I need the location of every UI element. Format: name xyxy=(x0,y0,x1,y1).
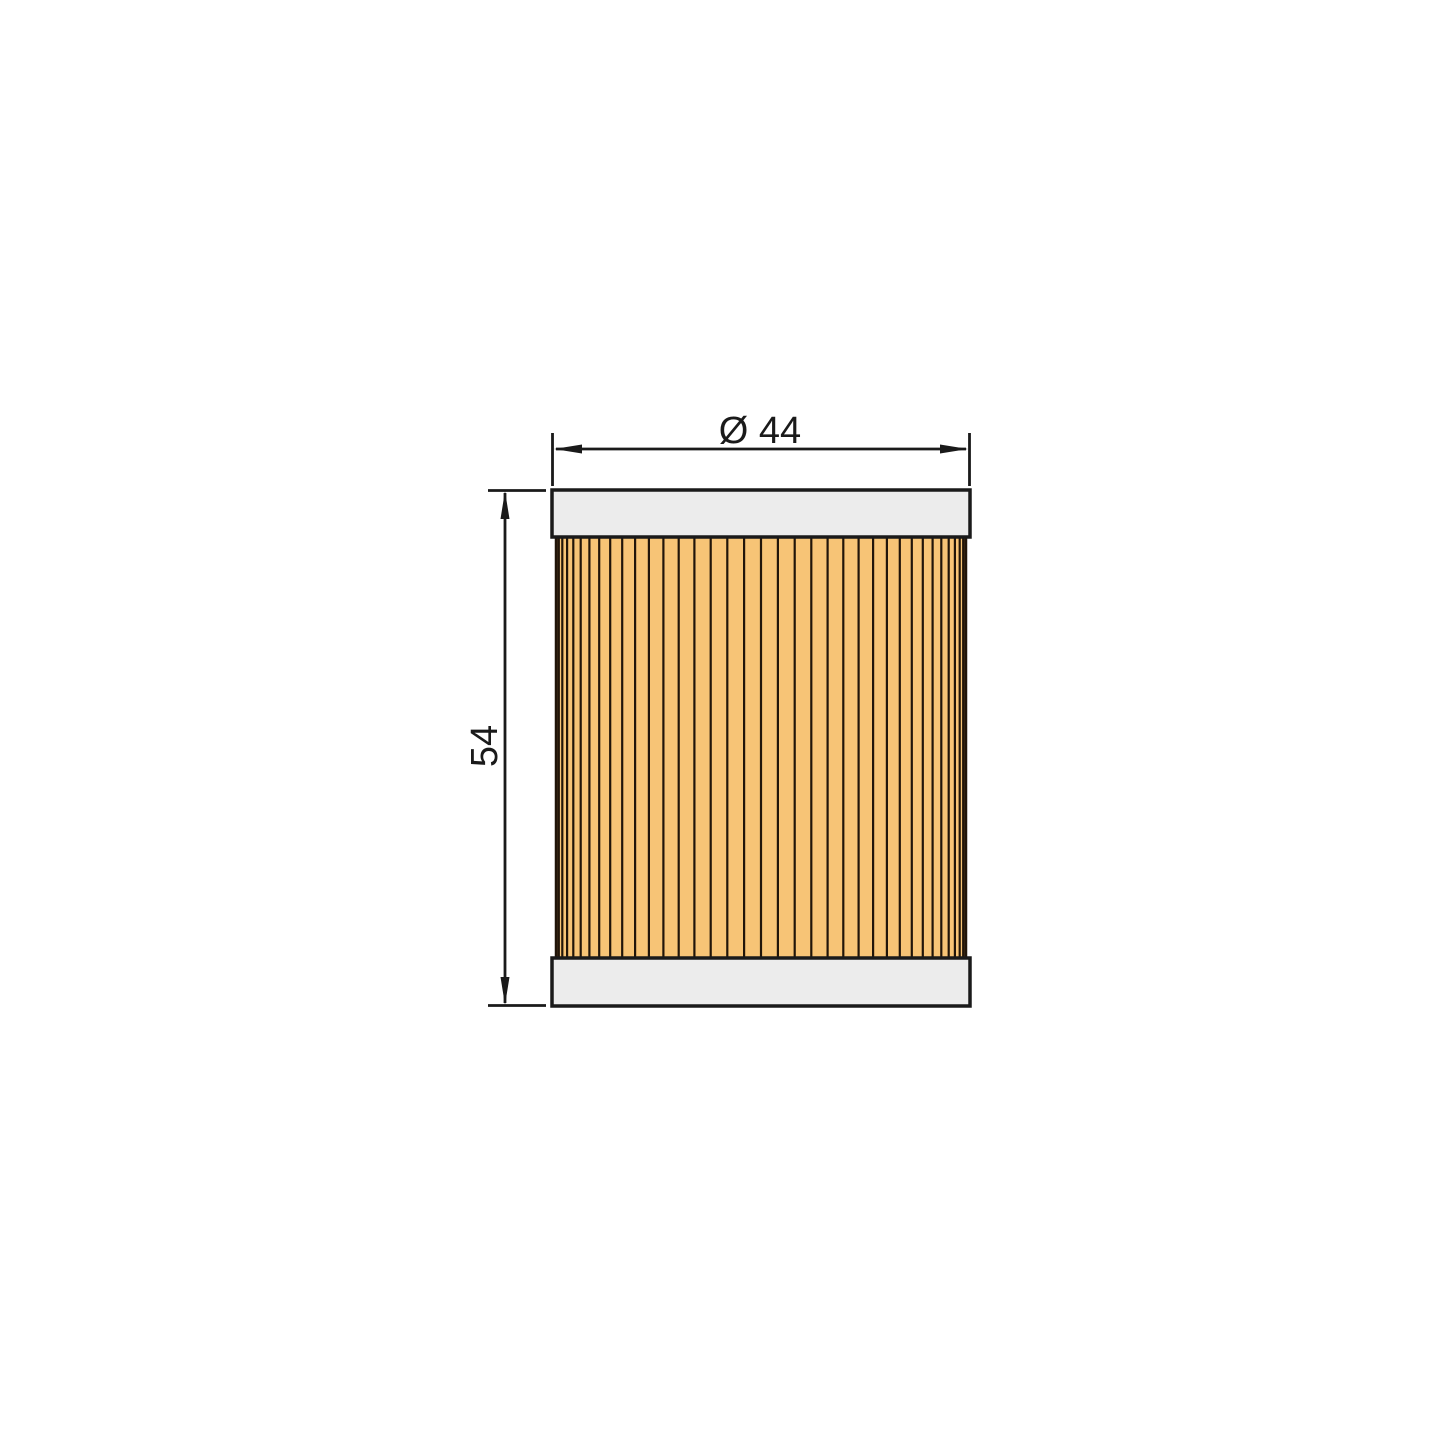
height-dimension-label: 54 xyxy=(464,725,506,767)
diameter-dimension-label: Ø 44 xyxy=(719,410,801,452)
height-dimension: 54 xyxy=(464,491,546,1006)
oil-filter-technical-drawing: Ø 44 54 xyxy=(0,0,1445,1445)
drawing-canvas: Ø 44 54 xyxy=(0,0,1445,1445)
diameter-dimension: Ø 44 xyxy=(553,410,970,486)
filter-element xyxy=(552,490,970,1006)
arrowhead-left-icon xyxy=(554,445,582,454)
filter-bottom-end-cap xyxy=(552,958,970,1006)
arrowhead-right-icon xyxy=(940,445,968,454)
arrowhead-down-icon xyxy=(501,977,510,1005)
filter-top-end-cap xyxy=(552,490,970,537)
arrowhead-up-icon xyxy=(501,491,510,519)
